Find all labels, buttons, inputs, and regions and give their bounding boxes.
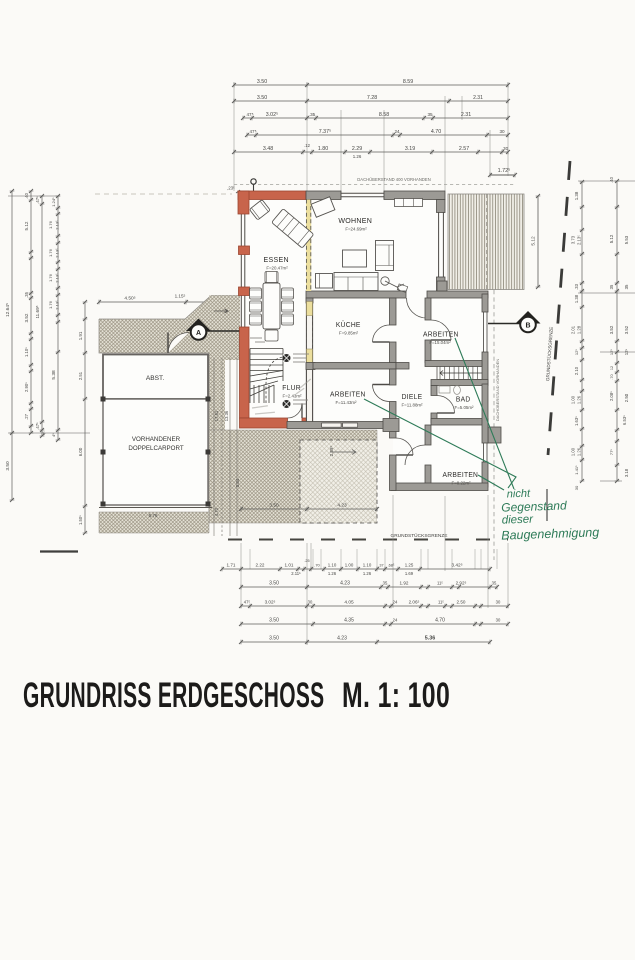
svg-text:1.76: 1.76 xyxy=(48,273,53,282)
svg-text:nicht: nicht xyxy=(507,488,532,501)
svg-text:3.50: 3.50 xyxy=(269,635,279,641)
svg-text:1.24⁵: 1.24⁵ xyxy=(51,197,56,207)
svg-text:2.06⁵: 2.06⁵ xyxy=(409,599,420,604)
svg-text:3.18: 3.18 xyxy=(624,468,629,477)
svg-text:.35: .35 xyxy=(309,112,316,117)
svg-text:17.61: 17.61 xyxy=(214,410,219,421)
svg-text:1.28: 1.28 xyxy=(577,325,582,334)
svg-text:F=11.88m²: F=11.88m² xyxy=(401,403,423,408)
svg-text:2.13⁵: 2.13⁵ xyxy=(577,235,582,245)
svg-text:F=15.04m²: F=15.04m² xyxy=(429,340,451,345)
svg-text:.12: .12 xyxy=(304,143,310,148)
svg-text:4.70: 4.70 xyxy=(214,507,219,516)
svg-text:30: 30 xyxy=(574,485,579,490)
svg-text:1.80: 1.80 xyxy=(318,146,328,152)
svg-text:F=2.43m²: F=2.43m² xyxy=(283,394,302,399)
svg-text:F=24.69m²: F=24.69m² xyxy=(345,227,367,232)
svg-text:.33: .33 xyxy=(574,283,579,289)
svg-text:2.22: 2.22 xyxy=(256,562,265,567)
svg-text:7.37⁵: 7.37⁵ xyxy=(319,129,332,135)
svg-text:2.13⁵: 2.13⁵ xyxy=(55,220,60,230)
svg-text:3.50: 3.50 xyxy=(257,95,267,101)
svg-text:3.02⁵: 3.02⁵ xyxy=(266,112,279,118)
svg-text:DACHÜBERSTAND VORHANDEN: DACHÜBERSTAND VORHANDEN xyxy=(495,359,500,421)
svg-text:1.26: 1.26 xyxy=(577,447,582,456)
svg-text:F=8.22m²: F=8.22m² xyxy=(452,481,471,486)
svg-text:7.28: 7.28 xyxy=(367,95,377,101)
svg-text:1.00: 1.00 xyxy=(570,395,575,404)
svg-text:2.13⁵: 2.13⁵ xyxy=(55,273,60,283)
svg-text:1.38: 1.38 xyxy=(574,191,579,200)
svg-text:2.31: 2.31 xyxy=(473,95,483,101)
svg-text:.47⁵: .47⁵ xyxy=(35,196,40,204)
svg-text:12.64⁵: 12.64⁵ xyxy=(5,303,11,317)
svg-text:2.31: 2.31 xyxy=(461,112,471,118)
svg-text:6.53⁵: 6.53⁵ xyxy=(622,415,627,425)
svg-text:5.76: 5.76 xyxy=(149,513,158,518)
svg-text:1.76: 1.76 xyxy=(48,300,53,309)
svg-text:ARBEITEN: ARBEITEN xyxy=(443,472,479,479)
svg-text:12⁵: 12⁵ xyxy=(574,349,579,355)
svg-text:ARBEITEN: ARBEITEN xyxy=(330,391,366,398)
svg-text:8.58: 8.58 xyxy=(379,112,389,118)
svg-text:35: 35 xyxy=(492,580,497,585)
svg-text:BAD: BAD xyxy=(456,396,471,403)
svg-text:1.50⁵: 1.50⁵ xyxy=(78,515,83,525)
svg-text:24: 24 xyxy=(393,617,398,622)
svg-text:5.84: 5.84 xyxy=(235,478,240,487)
svg-text:.27: .27 xyxy=(24,413,29,419)
svg-text:1.10⁵: 1.10⁵ xyxy=(24,347,29,357)
svg-text:77⁵: 77⁵ xyxy=(609,449,614,455)
svg-text:35: 35 xyxy=(427,112,433,117)
svg-text:1.71: 1.71 xyxy=(227,562,236,567)
svg-text:2.51: 2.51 xyxy=(78,371,83,380)
svg-text:2.92⁵: 2.92⁵ xyxy=(456,580,467,585)
svg-text:30: 30 xyxy=(308,599,313,604)
svg-text:GRUNDRISS ERDGESCHOSS: GRUNDRISS ERDGESCHOSS xyxy=(23,677,324,716)
svg-text:.40: .40 xyxy=(24,192,29,198)
svg-text:2.08⁵: 2.08⁵ xyxy=(609,391,614,401)
svg-text:3.52: 3.52 xyxy=(24,313,29,322)
svg-text:B: B xyxy=(525,323,530,330)
svg-text:11⁵: 11⁵ xyxy=(438,599,444,604)
svg-text:30: 30 xyxy=(499,129,505,134)
svg-text:5.12: 5.12 xyxy=(609,234,614,243)
svg-text:47⁵: 47⁵ xyxy=(244,599,251,604)
svg-text:30: 30 xyxy=(496,599,501,604)
svg-text:1.38: 1.38 xyxy=(574,294,579,303)
svg-text:1.26: 1.26 xyxy=(577,395,582,404)
svg-text:3.50: 3.50 xyxy=(257,79,267,85)
svg-text:.35: .35 xyxy=(24,291,29,297)
svg-text:.25: .25 xyxy=(304,559,309,563)
svg-text:3.50: 3.50 xyxy=(5,461,11,471)
svg-text:3.42⁵: 3.42⁵ xyxy=(451,562,462,568)
svg-text:3.50: 3.50 xyxy=(269,502,279,508)
svg-text:1.26: 1.26 xyxy=(353,154,362,159)
svg-text:ABST.: ABST. xyxy=(146,375,164,382)
svg-text:F=5.05m²: F=5.05m² xyxy=(455,405,474,410)
svg-text:35: 35 xyxy=(609,284,614,289)
svg-text:2.01: 2.01 xyxy=(570,325,575,334)
svg-text:3.52: 3.52 xyxy=(624,325,629,334)
svg-text:.68⁵: .68⁵ xyxy=(388,563,395,567)
svg-text:4.70: 4.70 xyxy=(431,129,441,135)
svg-text:3.50: 3.50 xyxy=(269,617,279,623)
svg-text:1.76: 1.76 xyxy=(48,248,53,257)
svg-text:.70: .70 xyxy=(314,562,320,567)
svg-text:2.11⁵: 2.11⁵ xyxy=(291,571,301,576)
svg-text:2.39⁵: 2.39⁵ xyxy=(329,446,334,457)
svg-text:2.57: 2.57 xyxy=(459,146,469,152)
svg-text:11⁵: 11⁵ xyxy=(437,580,443,585)
svg-text:F=9.85m²: F=9.85m² xyxy=(339,331,358,336)
svg-text:4.23: 4.23 xyxy=(340,580,350,586)
svg-text:.37: .37 xyxy=(378,563,383,567)
svg-text:DOPPELCARPORT: DOPPELCARPORT xyxy=(128,445,183,452)
svg-text:F=20.47m²: F=20.47m² xyxy=(266,266,288,271)
svg-text:DIELE: DIELE xyxy=(402,394,423,401)
svg-text:1.10: 1.10 xyxy=(363,562,372,567)
svg-text:4.23: 4.23 xyxy=(337,635,347,641)
svg-text:24: 24 xyxy=(393,599,398,604)
svg-text:4.70: 4.70 xyxy=(435,617,445,623)
svg-text:1.41⁵: 1.41⁵ xyxy=(574,465,579,475)
svg-text:1.69: 1.69 xyxy=(405,571,414,576)
svg-text:8.59: 8.59 xyxy=(403,79,413,85)
svg-text:1.72⁵: 1.72⁵ xyxy=(498,168,511,174)
svg-text:WOHNEN: WOHNEN xyxy=(338,216,372,225)
svg-text:2.13⁵: 2.13⁵ xyxy=(55,248,60,258)
svg-text:1.00: 1.00 xyxy=(345,562,354,567)
svg-text:2.10: 2.10 xyxy=(574,366,579,375)
svg-text:1.25: 1.25 xyxy=(405,562,414,567)
svg-text:4.23: 4.23 xyxy=(337,502,347,508)
svg-text:4.50⁵: 4.50⁵ xyxy=(124,295,135,301)
svg-text:1.15⁵: 1.15⁵ xyxy=(175,293,186,298)
svg-text:5.53: 5.53 xyxy=(624,235,629,244)
svg-text:DACHÜBERSTAND 400 VORHANDEN: DACHÜBERSTAND 400 VORHANDEN xyxy=(357,177,430,182)
svg-text:11.69⁵: 11.69⁵ xyxy=(35,305,40,318)
svg-text:30: 30 xyxy=(496,617,501,622)
svg-text:1.26: 1.26 xyxy=(363,571,372,576)
svg-text:47⁵: 47⁵ xyxy=(246,112,253,117)
svg-text:6.00: 6.00 xyxy=(78,447,83,456)
svg-text:4.35: 4.35 xyxy=(344,617,354,623)
svg-text:1.76: 1.76 xyxy=(48,220,53,229)
svg-text:A: A xyxy=(196,330,201,337)
svg-text:24: 24 xyxy=(394,129,400,134)
svg-text:35: 35 xyxy=(624,284,629,289)
svg-text:.70: .70 xyxy=(610,374,614,379)
svg-text:F=11.43m²: F=11.43m² xyxy=(335,400,357,405)
svg-text:1.91: 1.91 xyxy=(78,331,83,340)
svg-text:ESSEN: ESSEN xyxy=(264,255,289,264)
svg-text:1.10: 1.10 xyxy=(328,562,337,567)
svg-text:1.92: 1.92 xyxy=(400,580,409,585)
svg-text:dieser: dieser xyxy=(502,514,535,527)
svg-text:3.73: 3.73 xyxy=(570,235,575,244)
svg-text:.30: .30 xyxy=(502,146,509,151)
svg-text:3.19: 3.19 xyxy=(405,146,415,152)
svg-text:FLUR: FLUR xyxy=(282,385,301,392)
svg-text:2.29: 2.29 xyxy=(352,146,362,152)
svg-text:.40: .40 xyxy=(609,176,614,182)
svg-text:.47⁵: .47⁵ xyxy=(35,422,40,430)
svg-text:47⁵: 47⁵ xyxy=(249,129,256,134)
svg-text:1.01: 1.01 xyxy=(285,562,294,567)
svg-text:Gegenstand: Gegenstand xyxy=(501,498,567,514)
svg-text:1.63⁵: 1.63⁵ xyxy=(574,416,579,426)
svg-text:3.02⁵: 3.02⁵ xyxy=(265,599,276,604)
svg-text:4⁵: 4⁵ xyxy=(51,433,56,437)
svg-text:VORHANDENER: VORHANDENER xyxy=(132,436,181,443)
svg-text:12: 12 xyxy=(610,366,614,370)
svg-text:3.52: 3.52 xyxy=(609,325,614,334)
svg-text:1.00: 1.00 xyxy=(570,447,575,456)
svg-text:GRUNDSTÜCKSGRENZE: GRUNDSTÜCKSGRENZE xyxy=(390,532,447,539)
svg-text:2.13⁵: 2.13⁵ xyxy=(55,300,60,310)
svg-text:5.12: 5.12 xyxy=(531,236,537,246)
svg-text:KÜCHE: KÜCHE xyxy=(336,321,361,329)
svg-text:3.50: 3.50 xyxy=(269,580,279,586)
svg-text:5.12: 5.12 xyxy=(24,221,29,230)
svg-text:2.50: 2.50 xyxy=(624,393,629,402)
svg-text:ARBEITEN: ARBEITEN xyxy=(423,331,459,338)
svg-text:3.48: 3.48 xyxy=(263,146,273,152)
svg-text:35: 35 xyxy=(383,580,388,585)
svg-text:M. 1: 100: M. 1: 100 xyxy=(342,677,450,715)
svg-text:13.36: 13.36 xyxy=(224,410,229,421)
svg-text:2.90⁵: 2.90⁵ xyxy=(24,382,29,392)
svg-text:5.36: 5.36 xyxy=(425,635,436,641)
svg-text:4.05: 4.05 xyxy=(344,599,354,605)
svg-text:1.26: 1.26 xyxy=(328,571,337,576)
svg-text:,23⁵: ,23⁵ xyxy=(227,186,235,191)
svg-text:5.38: 5.38 xyxy=(51,370,57,380)
svg-text:2.50: 2.50 xyxy=(457,599,466,604)
